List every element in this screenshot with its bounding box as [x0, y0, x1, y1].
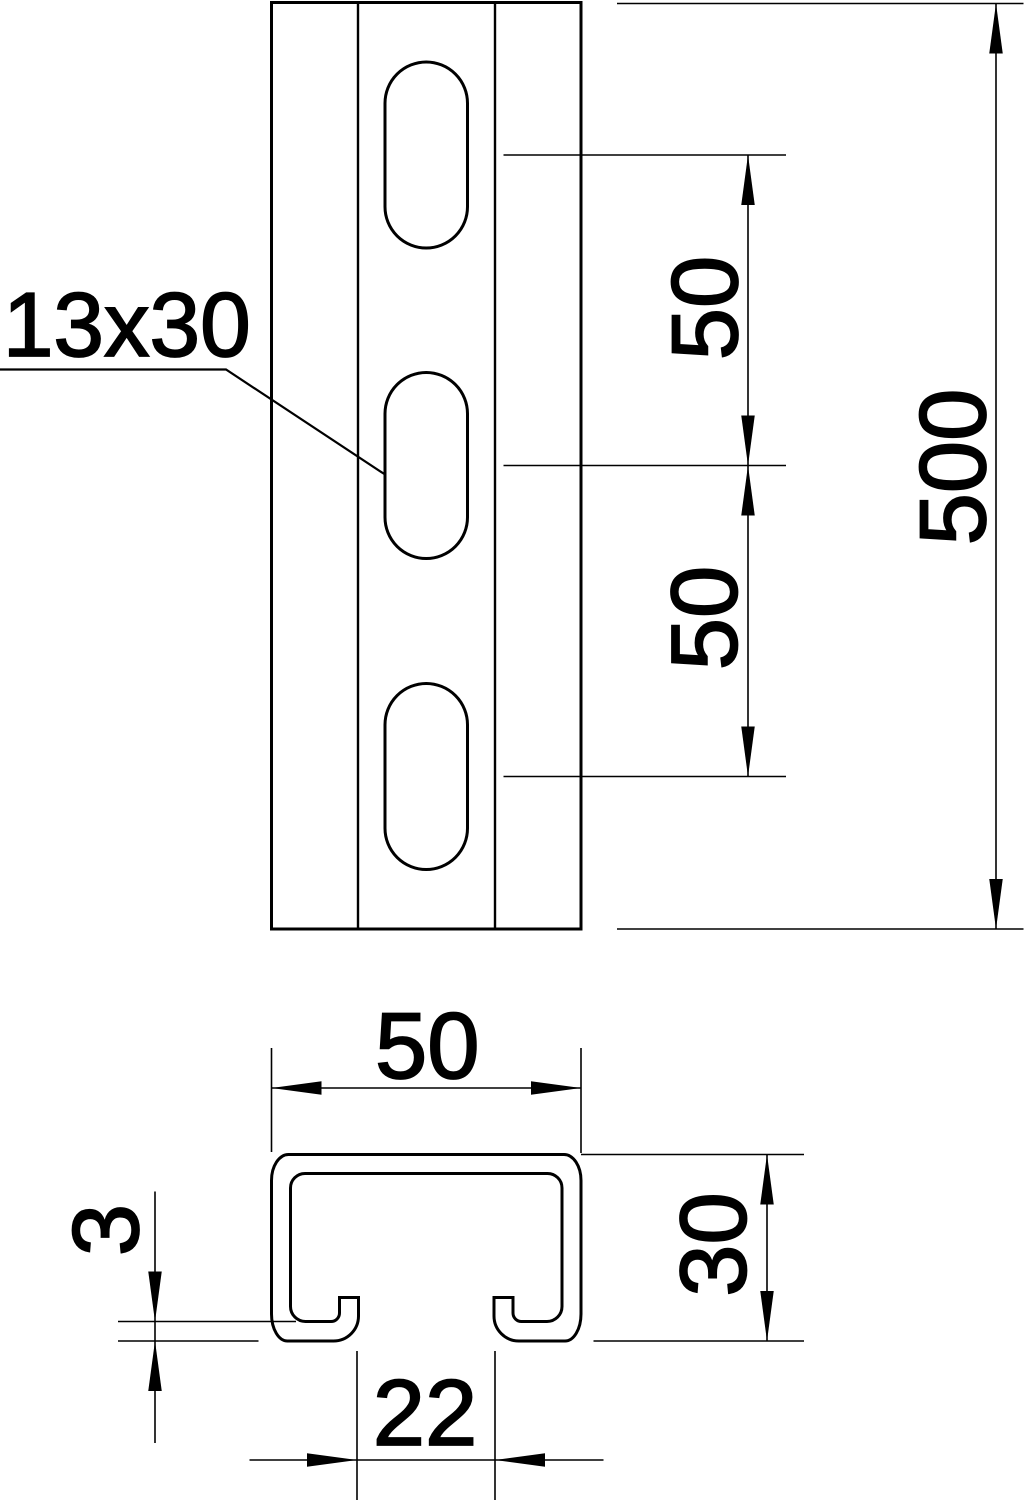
svg-text:30: 30 — [661, 1192, 766, 1297]
svg-text:3: 3 — [53, 1204, 158, 1256]
svg-text:22: 22 — [373, 1360, 478, 1465]
svg-text:50: 50 — [375, 993, 480, 1098]
svg-text:50: 50 — [652, 256, 757, 361]
svg-text:500: 500 — [900, 389, 1005, 546]
svg-text:50: 50 — [652, 566, 757, 671]
svg-text:13x30: 13x30 — [3, 275, 251, 376]
